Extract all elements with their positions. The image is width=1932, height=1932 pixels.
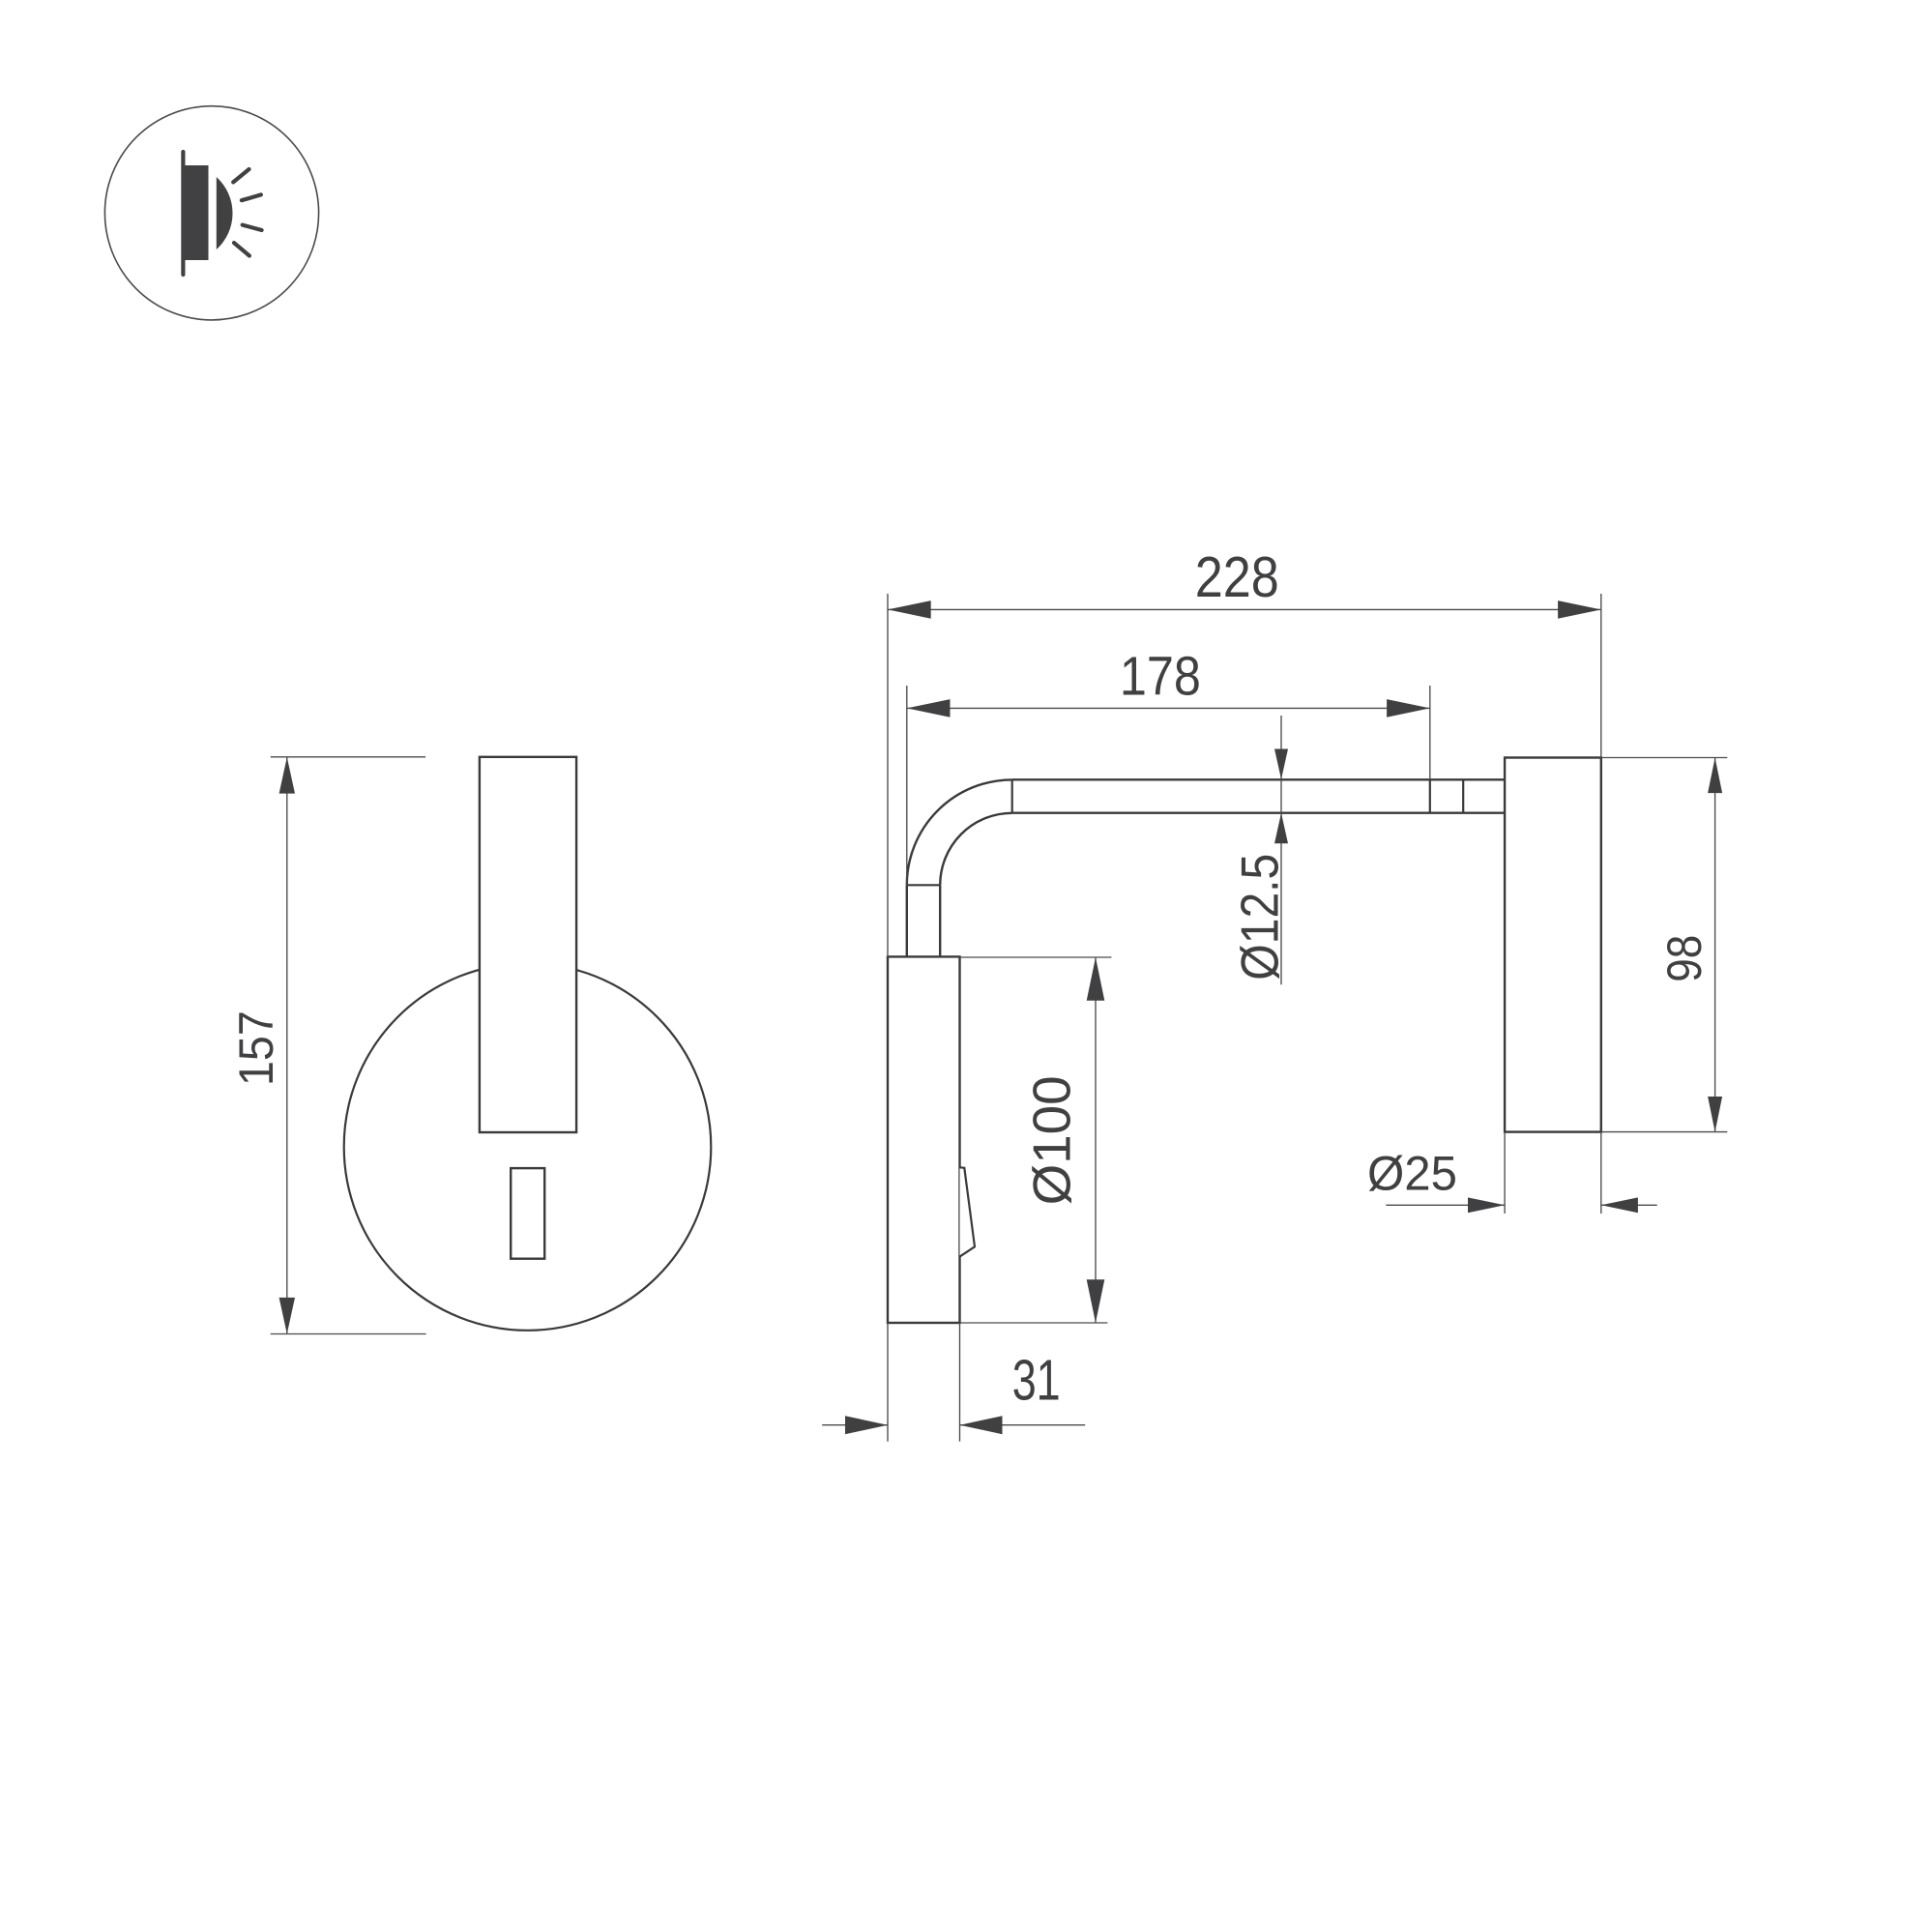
svg-text:228: 228 [1195,545,1279,609]
svg-text:Ø100: Ø100 [1022,1075,1082,1205]
svg-text:98: 98 [1657,935,1712,982]
svg-text:157: 157 [229,1010,283,1086]
svg-text:Ø25: Ø25 [1367,1146,1457,1200]
svg-text:178: 178 [1120,645,1201,707]
svg-text:31: 31 [1012,1349,1061,1413]
svg-text:Ø12.5: Ø12.5 [1230,854,1290,981]
